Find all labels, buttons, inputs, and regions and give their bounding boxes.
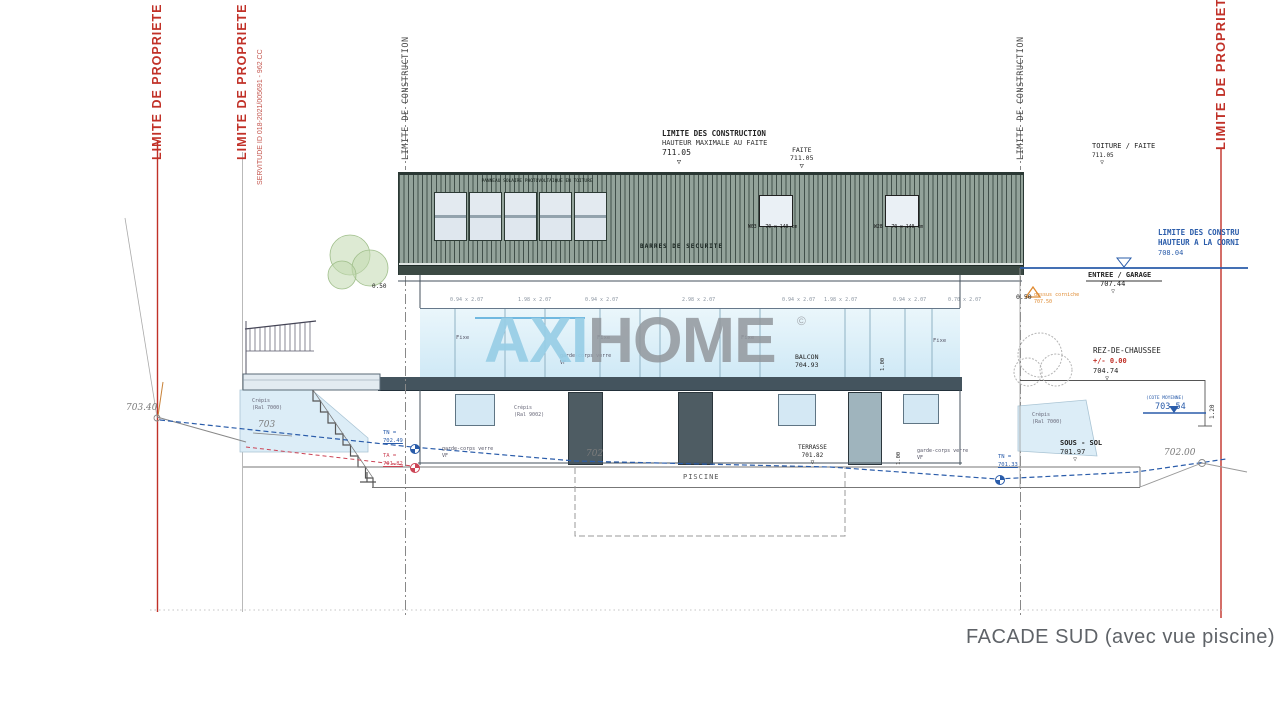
crepis-note: Crépis (Ral 9002) [514,405,544,418]
level-marker-icon: ▽ [662,159,696,166]
entree-garage-note: ENTREE / GARAGE 707.44 ▽ [1088,271,1151,295]
prop-limit-label-left: LIMITE DE PROPRIETE [150,3,164,160]
crepis-ral: (Ral 7000) [1032,419,1062,425]
tn-left-value: 702.49 [383,438,403,444]
window-dim: 0.94 x 2.07 [585,297,618,304]
crepis-note: Crépis (Ral 7000) [1032,412,1062,425]
toiture-faite-label: TOITURE / FAITE [1092,142,1155,150]
ta-left-value: 701.82 [383,461,403,467]
terrasse-label: TERRASSE [798,444,827,451]
tn-right-label: TN = [998,454,1011,460]
max-height-value: 711.05 [662,148,691,157]
level-703-40: 703.40 [126,403,158,413]
sous-sol-label: SOUS - SOL [1060,439,1102,447]
terrasse-value: 701.82 [802,452,824,459]
max-height-line2: HAUTEUR MAXIMALE AU FAITE [662,139,767,147]
corniche-value: 708.04 [1158,249,1183,257]
copyright-icon: © [797,314,806,328]
rdc-note: REZ-DE-CHAUSSEE +/- 0.00 704.74 ▽ [1093,346,1161,382]
rdc-label: REZ-DE-CHAUSSEE [1093,346,1161,355]
terrasse-note: TERRASSE 701.82 ▽ [798,444,827,466]
window-dim: 0.94 x 2.07 [450,297,483,304]
rdc-relative: +/- 0.00 [1093,357,1127,365]
level-702-00: 702.00 [1164,448,1196,458]
skylight-w03-label: W03 - 70 x 140 cm [748,225,797,231]
corniche-offset-dim: 0.50 [1016,293,1032,301]
roof-panel-note: PANNEAU SOLAIRE PHOTOVOLTAIQUE EN TOITUR… [452,179,622,185]
sous-sol-note: SOUS - SOL 701.97 ▽ [1060,439,1102,463]
crepis-text: Crépis [252,398,270,404]
garde-corps-text: garde-corps verre [917,448,968,454]
tree [1014,333,1072,386]
prop-limit-label-right: LIMITE DE PROPRIETE [1213,0,1228,150]
watermark: AXIHOME [484,308,776,372]
level-703: 703 [258,420,275,430]
level-marker-icon: ▽ [1060,457,1090,463]
fixe-label: Fixe [933,338,946,345]
prop-limit-label-mid: LIMITE DE PROPRIETE [235,3,249,160]
fixe-label: Fixe [456,335,469,342]
garde-corps-vf: VF [442,453,448,459]
crepis-text: Crépis [1032,412,1050,418]
survey-marker-ta-left [411,464,420,473]
dim-100-balcony: 1.00 [880,358,886,371]
corniche-offset-value: 707.50 [1034,299,1052,305]
level-702: 702 [586,449,603,459]
ta-left-label: TA = [383,453,396,459]
survey-marker-tn-left [411,445,420,454]
garde-corps-text: garde-corps verre [442,446,493,452]
level-marker-icon: ▽ [798,460,827,466]
level-marker-icon: ▽ [790,163,813,170]
garde-corps-note: garde-corps verre VF [917,448,968,461]
drawing-caption: FACADE SUD (avec vue piscine) [966,626,1275,649]
crepis-ral: (Ral 7000) [252,405,282,411]
tn-left-label: TN = [383,430,396,436]
faite-note: FAITE 711.05 ▽ [790,146,813,170]
bush [328,235,388,289]
window-dim: 0.70 x 2.07 [948,297,981,304]
entree-garage-value: 707.44 [1100,280,1125,288]
construction-limit-label-right: LIMITE DE CONSTRUCTION [1016,36,1026,160]
window-dim: 1.98 x 2.07 [518,297,551,304]
level-marker-icon: ▽ [1092,160,1112,166]
garde-corps-vf: VF [917,455,923,461]
faite-label: FAITE [792,146,812,154]
survey-marker-tn-right [996,476,1005,485]
entree-garage-label: ENTREE / GARAGE [1088,271,1151,279]
cote-moyenne-label: (COTE MOYENNE) [1146,396,1184,402]
balcon-note: BALCON 704.93 [795,353,818,370]
max-height-line1: LIMITE DES CONSTRUCTION [662,129,766,138]
dim-120: 1.20 [1209,405,1216,419]
level-marker-icon: ▽ [1088,289,1138,295]
servitude-label: SERVITUDE ID 018-2021/005691 - 962 CC [257,49,264,185]
cote-moyenne-value: 703.54 [1155,402,1186,413]
window-dim: 1.98 x 2.07 [824,297,857,304]
rdc-value: 704.74 [1093,367,1118,375]
window-dim: 0.94 x 2.07 [893,297,926,304]
corniche-line1: LIMITE DES CONSTRU [1158,228,1239,237]
toiture-faite-value: 711.05 [1092,152,1114,159]
ta-left-note: TA = 701.82 [383,452,403,469]
tn-left-note: TN = 702.49 [383,429,403,446]
facade-drawing: LIMITE DE PROPRIETE LIMITE DE PROPRIETE … [0,0,1280,708]
window-dim: 0.94 x 2.07 [782,297,815,304]
watermark-axi: AXI [484,304,588,376]
tn-right-note: TN = 701.33 [998,453,1018,470]
garde-corps-note: garde-corps verre VF [442,446,493,459]
piscine-label: PISCINE [683,473,720,482]
window-dim: 2.98 x 2.07 [682,297,715,304]
tn-right-value: 701.33 [998,462,1018,468]
sous-sol-value: 701.97 [1060,448,1085,456]
level-marker-icon: ▽ [1093,376,1121,382]
dim-100-terrace: 1.00 [896,452,902,465]
construction-limit-label-left: LIMITE DE CONSTRUCTION [401,36,411,160]
crepis-note: Crépis (Ral 7000) [252,398,282,411]
skylight-w28-label: W28 - 70 x 140 cm [874,225,923,231]
toiture-faite-note: TOITURE / FAITE 711.05 ▽ [1092,142,1155,166]
corniche-offset-text: dessus corniche [1034,292,1079,298]
corniche-limit-note: LIMITE DES CONSTRU HAUTEUR A LA CORNI 70… [1158,228,1239,258]
corniche-line2: HAUTEUR A LA CORNI [1158,238,1239,247]
balcon-label: BALCON [795,353,818,361]
max-height-note: LIMITE DES CONSTRUCTION HAUTEUR MAXIMALE… [662,129,767,166]
crepis-text: Crépis [514,405,532,411]
crepis-ral: (Ral 9002) [514,412,544,418]
roof-barres-note: BARRES DE SECURITE [640,243,723,251]
watermark-home: HOME [588,304,776,376]
dim-050-left: 0.50 [372,283,386,291]
balcon-value: 704.93 [795,361,818,369]
corniche-offset-note: dessus corniche 707.50 [1034,292,1079,306]
